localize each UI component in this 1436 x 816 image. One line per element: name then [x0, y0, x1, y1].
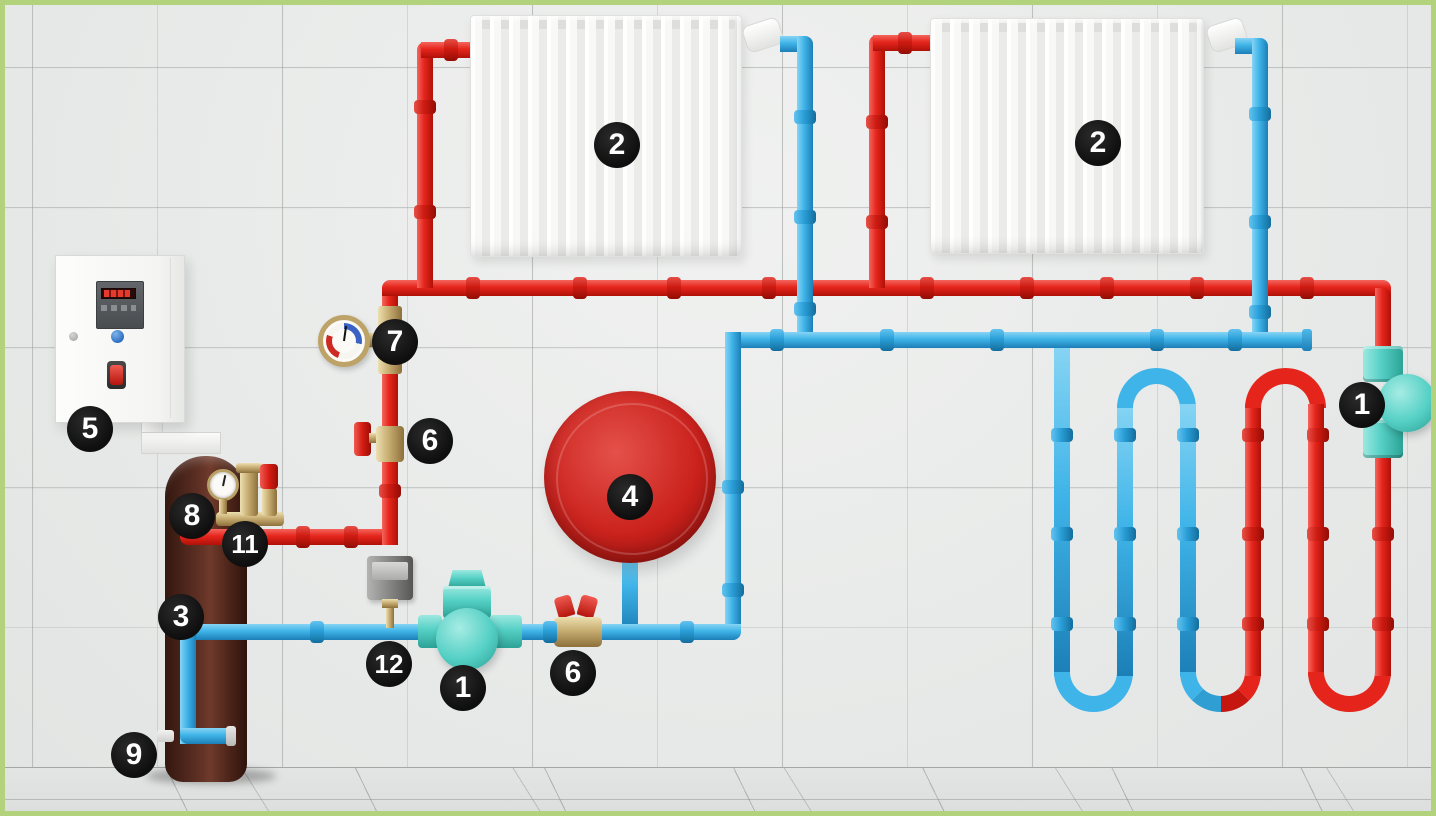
boiler-supply-pipe: [180, 529, 398, 545]
pipe-coupling: [722, 480, 744, 494]
tank-return-end-fitting: [226, 726, 236, 746]
pipe-coupling: [1242, 527, 1264, 541]
badge-number: 6: [422, 424, 439, 458]
badge-radiator-right: 2: [1075, 120, 1121, 166]
panel-power-switch-rocker[interactable]: [110, 365, 123, 385]
pipe-coupling: [344, 526, 358, 548]
panel-led: [69, 332, 78, 341]
pipe-coupling: [543, 621, 557, 643]
return-valve-wing-left[interactable]: [553, 594, 575, 619]
return-valve-wing-right[interactable]: [576, 594, 598, 619]
pipe-coupling: [1307, 428, 1329, 442]
pipe-coupling: [1114, 617, 1136, 631]
badge-number: 8: [184, 499, 201, 533]
pipe-coupling: [414, 205, 436, 219]
safety-group-cap: [236, 463, 262, 473]
pipe-coupling: [1300, 277, 1314, 299]
pipe-coupling: [866, 215, 888, 229]
badge-valve-return: 6: [550, 650, 596, 696]
return-header: [725, 332, 1312, 348]
pipe-coupling: [722, 583, 744, 597]
pipe-coupling: [1242, 617, 1264, 631]
pipe-coupling: [1249, 107, 1271, 121]
pipe-coupling: [1307, 527, 1329, 541]
pipe-coupling: [296, 526, 310, 548]
panel-display-digits: [104, 290, 130, 297]
pump-floor-volute: [436, 608, 498, 670]
badge-pump-floor: 1: [440, 665, 486, 711]
pipe-coupling: [1249, 305, 1271, 319]
supply-valve-body[interactable]: [376, 426, 404, 462]
supply-header: [382, 280, 1391, 296]
pipe-coupling: [1051, 428, 1073, 442]
pipe-coupling: [1020, 277, 1034, 299]
pipe-coupling: [667, 277, 681, 299]
badge-pump-right: 1: [1339, 382, 1385, 428]
badge-number: 2: [609, 128, 626, 162]
return-header-end-cap: [1302, 329, 1312, 351]
pipe-coupling: [680, 621, 694, 643]
loop-uturn-top-blue: [1117, 368, 1196, 408]
badge-number: 2: [1090, 126, 1107, 160]
pump-right-motor: [1378, 374, 1436, 432]
pipe-coupling: [1177, 527, 1199, 541]
loop-uturn-top-red: [1245, 368, 1326, 408]
pipe-coupling: [1051, 617, 1073, 631]
badge-number: 7: [387, 325, 404, 359]
badge-number: 11: [231, 529, 259, 560]
badge-number: 1: [455, 671, 472, 705]
floor-grout-line: [0, 799, 1436, 800]
pipe-coupling: [466, 277, 480, 299]
badge-number: 5: [82, 412, 99, 446]
tank-return-downpipe: [180, 624, 196, 744]
safety-valve-red-cap: [260, 464, 278, 489]
radiator-right: [930, 18, 1204, 254]
pipe-coupling: [898, 32, 912, 54]
radiator-right-top-rail: [937, 23, 1197, 32]
badge-tank-gauge: 8: [169, 493, 215, 539]
pipe-coupling: [770, 329, 784, 351]
badge-radiator-left: 2: [594, 122, 640, 168]
pipe-coupling: [1150, 329, 1164, 351]
pipe-coupling: [1177, 617, 1199, 631]
pump-right-riser: [1375, 288, 1391, 354]
pipe-coupling: [866, 115, 888, 129]
pipe-coupling: [573, 277, 587, 299]
pipe-coupling: [990, 329, 1004, 351]
badge-number: 9: [126, 738, 143, 772]
loop-uturn-bottom-red: [1308, 672, 1391, 712]
radiator-left-top-rail: [477, 20, 735, 29]
badge-number: 3: [173, 600, 190, 634]
loop-uturn-bottom-blue: [1054, 672, 1133, 712]
pipe-coupling: [794, 302, 816, 316]
pipe-coupling: [920, 277, 934, 299]
pipe-coupling: [1307, 617, 1329, 631]
pipe-coupling: [1372, 527, 1394, 541]
pipe-coupling: [1177, 428, 1199, 442]
heating-system-diagram: 1 1 2 2 3 4 5 6 6 7 8 9 11 12: [0, 0, 1436, 816]
badge-thermomanometer: 7: [372, 319, 418, 365]
badge-valve-supply: 6: [407, 418, 453, 464]
pipe-coupling: [762, 277, 776, 299]
pipe-coupling: [444, 39, 458, 61]
safety-group-body: [240, 470, 258, 516]
badge-drain-valve: 9: [111, 732, 157, 778]
loop-pipe-red-3: [1375, 452, 1391, 676]
tank-return-stub: [180, 728, 230, 744]
temperature-sensor-nut: [382, 599, 398, 608]
pipe-coupling: [1190, 277, 1204, 299]
pipe-coupling: [794, 210, 816, 224]
pipe-coupling: [310, 621, 324, 643]
pipe-coupling: [794, 110, 816, 124]
pipe-coupling: [1114, 428, 1136, 442]
loop-uturn-transition-blue-half: [1180, 672, 1221, 712]
badge-expansion-tank: 4: [607, 474, 653, 520]
loop-uturn-transition-red-half: [1221, 672, 1261, 712]
gauge-stem: [219, 499, 227, 514]
pipe-coupling: [880, 329, 894, 351]
badge-storage-tank: 3: [158, 594, 204, 640]
radiator-left-return-riser: [797, 36, 813, 332]
pipe-coupling: [1249, 215, 1271, 229]
return-valve-body[interactable]: [554, 617, 602, 647]
pipe-coupling: [414, 100, 436, 114]
temperature-sensor-face: [372, 562, 408, 580]
temperature-sensor-stem: [386, 606, 394, 628]
radiator-right-supply-riser: [869, 35, 885, 288]
badge-number: 1: [1354, 388, 1371, 422]
pipe-coupling: [1228, 329, 1242, 351]
safety-valve-body: [262, 488, 277, 516]
panel-buttons-row[interactable]: [101, 305, 136, 311]
thermostatic-head-left[interactable]: [741, 16, 786, 54]
badge-number: 12: [375, 649, 404, 680]
pipe-coupling: [1051, 527, 1073, 541]
pipe-coupling: [1114, 527, 1136, 541]
badge-control-panel: 5: [67, 406, 113, 452]
badge-safety-group: 11: [222, 521, 268, 567]
badge-temperature-sensor: 12: [366, 641, 412, 687]
pipe-coupling: [1242, 428, 1264, 442]
badge-number: 6: [565, 656, 582, 690]
radiator-left-supply-riser: [417, 42, 433, 288]
pipe-coupling: [379, 484, 401, 498]
pipe-coupling: [1100, 277, 1114, 299]
badge-number: 4: [622, 480, 639, 514]
radiator-right-return-riser: [1252, 38, 1268, 332]
panel-conduit-horizontal: [141, 432, 221, 454]
drain-valve: [157, 730, 174, 742]
pipe-coupling: [1372, 617, 1394, 631]
panel-blue-button[interactable]: [111, 330, 124, 343]
panel-door-edge: [170, 258, 171, 418]
